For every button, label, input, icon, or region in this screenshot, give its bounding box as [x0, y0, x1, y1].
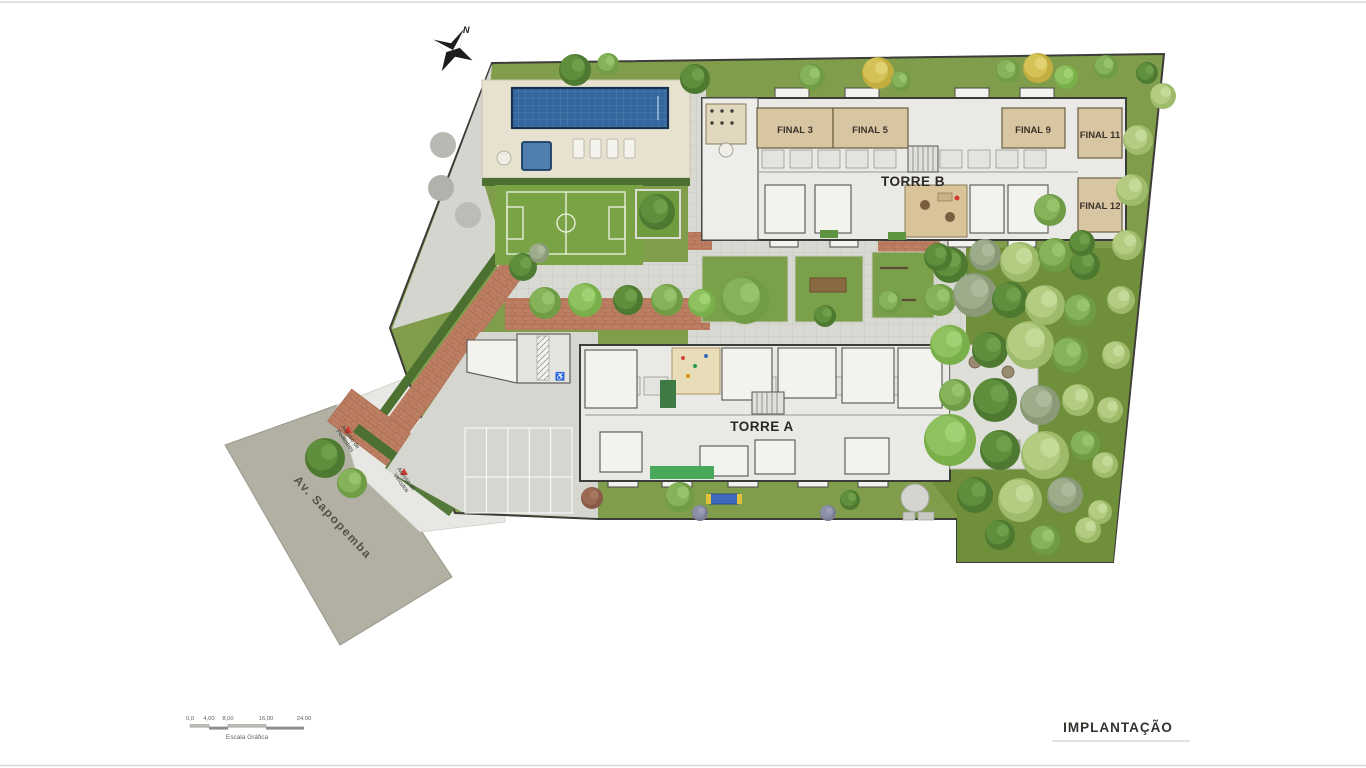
terrace-plant	[955, 196, 960, 201]
building-cell	[940, 150, 962, 168]
tree	[597, 53, 619, 75]
swimming-pool	[512, 88, 668, 128]
pool-table	[497, 151, 511, 165]
building-unit	[755, 440, 795, 474]
building-cell	[874, 150, 896, 168]
gray-planter-circle	[455, 202, 481, 228]
terrace-table	[945, 212, 955, 222]
tree	[969, 239, 1001, 271]
tree	[924, 284, 956, 316]
torre-b-building: FINAL 3 FINAL 5 FINAL 9 FINAL 11 FINAL 1…	[702, 88, 1126, 247]
tree	[1021, 431, 1069, 479]
tree	[1102, 341, 1130, 369]
building-unit	[600, 432, 642, 472]
tree	[985, 520, 1015, 550]
building-unit	[765, 185, 805, 233]
tree	[1030, 525, 1060, 555]
tree	[1107, 286, 1135, 314]
tree	[820, 505, 836, 521]
tree	[721, 276, 769, 324]
tree	[639, 194, 675, 230]
building-unit	[842, 348, 894, 403]
tree	[1112, 230, 1142, 260]
building-unit	[845, 438, 889, 474]
unit-label-final-3: FINAL 3	[777, 125, 813, 136]
tree	[581, 487, 603, 509]
tree	[878, 290, 902, 314]
tree	[559, 54, 591, 86]
tree	[1062, 384, 1094, 416]
tree	[996, 59, 1020, 83]
lobby-table	[719, 143, 733, 157]
tree	[1020, 385, 1060, 425]
ramp-hatch	[537, 336, 549, 380]
play-toy	[681, 356, 685, 360]
play-toy	[693, 364, 697, 368]
building-unit	[778, 348, 836, 398]
scale-tick-0: 0,0	[186, 716, 194, 722]
building-cell	[968, 150, 990, 168]
tree	[1075, 517, 1101, 543]
terrace-table	[920, 200, 930, 210]
tree	[1047, 477, 1083, 513]
tree	[1116, 174, 1148, 206]
tree	[529, 243, 549, 263]
tree	[1070, 430, 1100, 460]
planter-strip	[888, 232, 906, 240]
building-cell	[846, 150, 868, 168]
tree	[1069, 230, 1095, 256]
tree	[939, 379, 971, 411]
building-cell	[762, 150, 784, 168]
tree	[992, 282, 1028, 318]
tree	[665, 482, 695, 512]
scale-tick-3: 16,00	[259, 716, 274, 722]
building-cell	[996, 150, 1018, 168]
tree	[953, 273, 997, 317]
terrace-table	[1002, 366, 1014, 378]
tree	[1000, 242, 1040, 282]
unit-label-final-9: FINAL 9	[1015, 125, 1051, 136]
kids-pool	[522, 142, 551, 170]
scale-tick-1: 4,00	[203, 716, 214, 722]
tree	[1136, 62, 1158, 84]
sheet-title: IMPLANTAÇÃO	[1063, 720, 1173, 735]
building-cell	[790, 150, 812, 168]
gray-planter-circle	[430, 132, 456, 158]
tree	[1034, 194, 1066, 226]
scale-caption: Escala Gráfica	[226, 734, 269, 741]
compass-n-label: N	[463, 25, 470, 35]
torre-b-label: TORRE B	[881, 174, 945, 189]
building-cell	[818, 150, 840, 168]
building-unit	[815, 185, 851, 233]
tree	[529, 287, 561, 319]
tree	[1038, 238, 1072, 272]
tree	[337, 468, 367, 498]
tree	[799, 64, 825, 90]
tree	[891, 71, 911, 91]
tree	[1092, 452, 1118, 478]
indoor-playground	[672, 348, 720, 394]
tree	[692, 505, 708, 521]
tree	[1025, 285, 1065, 325]
site-plan-canvas: Av. Sapopemba	[0, 0, 1366, 768]
play-equipment	[706, 494, 742, 504]
tree	[972, 332, 1008, 368]
tree	[305, 438, 345, 478]
tree	[924, 414, 976, 466]
tree	[1006, 321, 1054, 369]
scale-tick-2: 8,00	[222, 716, 233, 722]
tree	[998, 478, 1042, 522]
accessible-parking-icon: ♿	[555, 371, 565, 381]
green-mat	[660, 380, 676, 408]
hedge-strip	[482, 178, 690, 186]
tree	[1094, 55, 1118, 79]
building-unit	[970, 185, 1004, 233]
tree	[613, 285, 643, 315]
play-toy	[686, 374, 690, 378]
tree	[924, 243, 952, 271]
tree	[1097, 397, 1123, 423]
tree	[1054, 65, 1078, 89]
site-plan-sheet: Av. Sapopemba	[0, 0, 1366, 768]
gray-planter-circle	[428, 175, 454, 201]
unit-label-final-12: FINAL 12	[1079, 201, 1120, 212]
tree	[1150, 83, 1176, 109]
play-toy	[704, 354, 708, 358]
tree	[688, 289, 716, 317]
pergola	[810, 278, 846, 292]
tree	[568, 283, 602, 317]
tree	[651, 284, 683, 316]
terrace-bench	[938, 193, 952, 201]
soccer-field	[495, 185, 643, 265]
scale-tick-4: 24,00	[297, 716, 312, 722]
building-cell	[1024, 150, 1046, 168]
tree	[840, 490, 860, 510]
pool-area	[482, 80, 690, 186]
tree	[1123, 125, 1153, 155]
tree	[973, 378, 1017, 422]
unit-label-final-11: FINAL 11	[1080, 130, 1121, 141]
lawn-strip	[650, 466, 714, 479]
tree	[980, 430, 1020, 470]
tree	[930, 325, 970, 365]
unit-label-final-5: FINAL 5	[852, 125, 888, 136]
torre-a-label: TORRE A	[730, 419, 794, 434]
wood-terrace	[905, 185, 967, 237]
planter-strip	[820, 230, 838, 238]
tree	[814, 305, 836, 327]
tree	[1064, 294, 1096, 326]
tree	[957, 477, 993, 513]
tree	[1052, 337, 1088, 373]
tree	[1023, 53, 1053, 83]
tree	[680, 64, 710, 94]
tree	[862, 57, 894, 89]
torre-a-building: TORRE A	[580, 345, 950, 487]
building-unit	[585, 350, 637, 408]
